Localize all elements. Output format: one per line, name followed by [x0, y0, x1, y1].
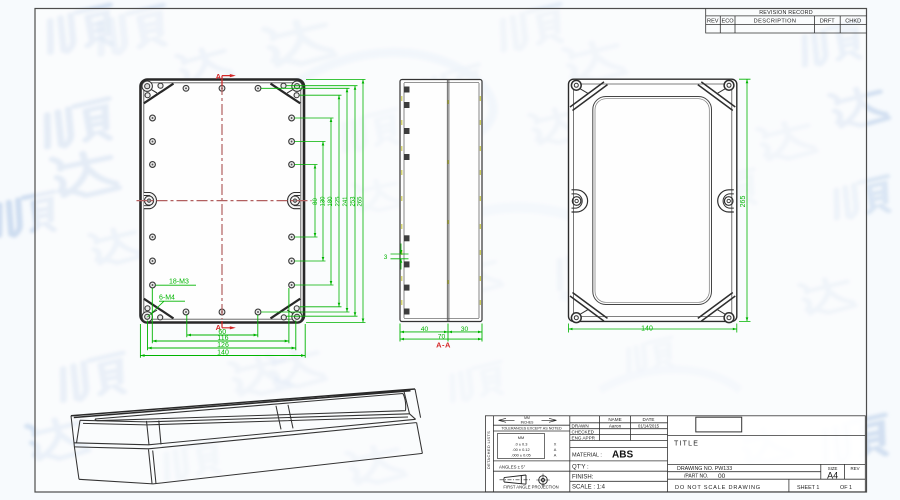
- svg-text:6-M4: 6-M4: [159, 295, 175, 302]
- svg-text:130: 130: [320, 196, 326, 207]
- svg-text:DETACHED LISTS: DETACHED LISTS: [486, 431, 491, 469]
- svg-text:X: X: [554, 441, 557, 446]
- svg-text:A: A: [216, 72, 222, 81]
- svg-text:INCHES: INCHES: [521, 420, 535, 424]
- svg-text:3: 3: [384, 254, 388, 261]
- svg-text:/PART NO.: /PART NO.: [684, 474, 708, 480]
- svg-text:253: 253: [350, 196, 356, 207]
- svg-text:FIRST ANGLE PROJECTION: FIRST ANGLE PROJECTION: [503, 485, 558, 490]
- svg-text:TITLE: TITLE: [674, 441, 699, 448]
- svg-text:FINISH:: FINISH:: [572, 475, 594, 481]
- svg-text:CHECKED: CHECKED: [572, 429, 595, 434]
- svg-text:30: 30: [461, 326, 469, 333]
- svg-text:REVISION RECORD: REVISION RECORD: [759, 10, 813, 16]
- svg-text:00: 00: [718, 473, 726, 480]
- svg-text:70: 70: [438, 333, 446, 340]
- svg-text:SHEET 1: SHEET 1: [797, 485, 819, 491]
- svg-text:225: 225: [335, 196, 341, 207]
- svg-text:.000 ± 0.05: .000 ± 0.05: [511, 452, 530, 457]
- svg-text:265: 265: [740, 196, 747, 208]
- svg-text:ENG APPR: ENG APPR: [572, 435, 596, 440]
- svg-text:MM: MM: [518, 435, 524, 440]
- svg-text:DATE: DATE: [643, 417, 655, 422]
- svg-text:OF 1: OF 1: [840, 485, 852, 491]
- svg-text:241: 241: [343, 196, 349, 207]
- svg-text:REV: REV: [850, 466, 859, 471]
- svg-text:.0 ± 0.3: .0 ± 0.3: [515, 441, 528, 446]
- svg-text:ECO: ECO: [722, 19, 735, 25]
- svg-text:80: 80: [313, 198, 319, 205]
- svg-text:01/14/2015: 01/14/2015: [638, 423, 660, 428]
- svg-text:A: A: [554, 452, 557, 457]
- svg-text:DESCRIPTION: DESCRIPTION: [754, 19, 797, 25]
- svg-text:TOLERANCES EXCEPT AS NOTED: TOLERANCES EXCEPT AS NOTED: [501, 427, 562, 431]
- svg-text:Aaron: Aaron: [609, 423, 622, 428]
- svg-text:126: 126: [217, 342, 229, 349]
- svg-text:ABS: ABS: [612, 450, 633, 461]
- svg-text:NAME: NAME: [608, 417, 621, 422]
- svg-text:140: 140: [641, 326, 653, 333]
- svg-text:140: 140: [217, 350, 229, 357]
- svg-text:SCALE : 1:4: SCALE : 1:4: [572, 484, 606, 490]
- svg-text:A: A: [554, 447, 557, 452]
- svg-text:18-M3: 18-M3: [169, 279, 189, 286]
- svg-text:180: 180: [328, 196, 334, 207]
- svg-text:DRFT: DRFT: [820, 19, 835, 25]
- svg-text:A-A: A-A: [436, 341, 451, 350]
- svg-text:265: 265: [357, 196, 363, 207]
- svg-text:ANGLES ± 5°: ANGLES ± 5°: [499, 464, 526, 469]
- svg-text:40: 40: [421, 326, 429, 333]
- svg-text:116: 116: [217, 335, 228, 342]
- svg-text:DRAWN: DRAWN: [572, 423, 589, 428]
- svg-text:MATERIAL :: MATERIAL :: [572, 453, 602, 459]
- svg-text:DO NOT SCALE DRAWING: DO NOT SCALE DRAWING: [675, 485, 761, 491]
- svg-text:QT'Y :: QT'Y :: [572, 464, 589, 470]
- svg-text:REV: REV: [707, 19, 719, 25]
- svg-text:DRAWING NO. PW133: DRAWING NO. PW133: [677, 466, 732, 472]
- svg-text:.00 ± 0.12: .00 ± 0.12: [512, 447, 529, 452]
- svg-text:CHKD: CHKD: [845, 19, 861, 25]
- svg-text:A4: A4: [827, 470, 838, 480]
